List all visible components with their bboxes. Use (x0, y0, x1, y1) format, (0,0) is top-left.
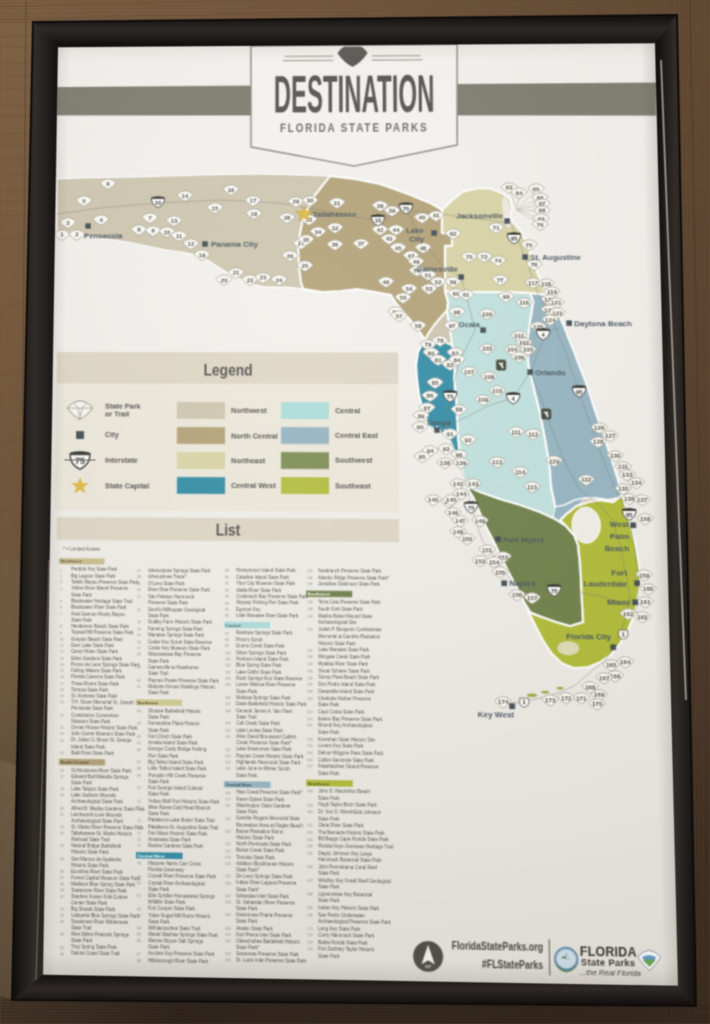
svg-text:28: 28 (60, 787, 64, 791)
svg-text:81: 81 (137, 894, 141, 899)
svg-text:126: 126 (225, 881, 231, 886)
svg-text:Letchworth-Love Mounds: Letchworth-Love Mounds (71, 812, 122, 818)
svg-text:139: 139 (307, 607, 313, 611)
svg-text:Naples: Naples (509, 579, 536, 589)
svg-text:26: 26 (60, 768, 64, 772)
svg-text:77: 77 (137, 844, 141, 848)
svg-text:38: 38 (60, 882, 64, 886)
svg-text:North Central: North Central (60, 759, 88, 765)
svg-text:165: 165 (307, 851, 313, 856)
svg-text:Gamble Rogers Memorial State: Gamble Rogers Memorial State (236, 816, 301, 822)
svg-text:86: 86 (137, 939, 141, 944)
svg-text:State Park: State Park (236, 919, 258, 925)
svg-text:Dagny Johnson Key Largo: Dagny Johnson Key Largo (318, 850, 373, 856)
svg-text:1: 1 (621, 632, 625, 639)
svg-text:65: 65 (137, 741, 141, 745)
svg-text:DEP: DEP (425, 965, 432, 970)
svg-text:114: 114 (225, 760, 231, 764)
svg-text:Amelia Island State Park: Amelia Island State Park (148, 740, 198, 746)
svg-text:State Trail: State Trail (236, 714, 256, 720)
svg-text:156: 156 (512, 593, 523, 600)
svg-text:State Park: State Park (318, 771, 340, 777)
svg-text:109: 109 (225, 722, 231, 726)
svg-text:116: 116 (225, 791, 231, 795)
svg-text:Devil’s Millhopper Geological: Devil’s Millhopper Geological (148, 607, 205, 613)
svg-text:45: 45 (395, 246, 403, 252)
svg-text:Madira Bickel Mound State: Madira Bickel Mound State (318, 613, 373, 619)
svg-text:State Park: State Park (148, 714, 170, 720)
svg-text:State Park: State Park (148, 658, 170, 664)
svg-text:State Trail: State Trail (71, 925, 92, 931)
svg-text:Palatka-to-St. Augustine State: Palatka-to-St. Augustine State Trail (148, 824, 218, 830)
svg-text:Avalon State Park: Avalon State Park (236, 925, 274, 931)
svg-text:59: 59 (137, 666, 141, 670)
svg-text:Little Talbot Island State Par: Little Talbot Island State Park (148, 766, 207, 772)
svg-text:151: 151 (482, 548, 493, 554)
svg-text:Lake Griffin State Park: Lake Griffin State Park (236, 669, 282, 675)
svg-text:99: 99 (225, 644, 229, 648)
svg-text:List: List (216, 522, 241, 541)
svg-text:30: 30 (60, 806, 64, 810)
svg-text:Mound Key Archaeological: Mound Key Archaeological (318, 723, 372, 729)
svg-text:Gainesville-to-Hawthorne: Gainesville-to-Hawthorne (148, 664, 199, 670)
svg-text:153: 153 (307, 737, 313, 741)
svg-text:Memorial at Gamble Plantation: Memorial at Gamble Plantation (318, 634, 381, 640)
svg-text:102: 102 (225, 664, 231, 668)
svg-text:124: 124 (545, 318, 556, 324)
svg-text:27: 27 (60, 775, 64, 779)
svg-text:143: 143 (468, 482, 479, 488)
svg-text:Fort: Fort (611, 568, 628, 578)
svg-text:Highlands Hammock State Park: Highlands Hammock State Park (236, 759, 301, 765)
svg-text:10: 10 (164, 230, 171, 236)
svg-text:39: 39 (60, 888, 64, 892)
svg-text:9: 9 (60, 631, 62, 635)
svg-text:Historic State Park: Historic State Park (236, 835, 275, 841)
svg-text:128: 128 (593, 440, 604, 446)
svg-text:Southeast: Southeast (335, 483, 371, 491)
svg-text:Pier State Park: Pier State Park (148, 753, 179, 759)
svg-text:42: 42 (60, 914, 64, 919)
svg-text:Cockroach Bay Preserve State P: Cockroach Bay Preserve State Park (236, 594, 309, 600)
svg-text:State Park: State Park (318, 898, 340, 904)
svg-text:97: 97 (225, 631, 229, 635)
svg-text:13: 13 (171, 219, 179, 225)
svg-text:Dr. Julian G. Bruce St. George: Dr. Julian G. Bruce St. George (71, 737, 132, 743)
svg-text:134: 134 (631, 481, 642, 487)
svg-text:Jonathan Dickinson State Park: Jonathan Dickinson State Park (318, 581, 381, 587)
svg-text:T.H. Stone Memorial St. Joseph: T.H. Stone Memorial St. Joseph (71, 700, 135, 706)
svg-text:Stephen Foster Folk Culture: Stephen Foster Folk Culture (71, 894, 129, 900)
svg-text:71: 71 (493, 226, 501, 232)
svg-text:143: 143 (307, 655, 313, 659)
svg-text:Northeast: Northeast (231, 458, 266, 466)
svg-text:Big Shoals State Park: Big Shoals State Park (71, 906, 116, 912)
svg-text:20: 20 (60, 701, 64, 705)
svg-text:Haw Creek Preserve State Park*: Haw Creek Preserve State Park* (236, 790, 303, 796)
svg-text:Ochlockonee River State Park: Ochlockonee River State Park (71, 767, 132, 773)
svg-text:State Park: State Park (105, 403, 141, 410)
svg-text:172: 172 (307, 933, 313, 938)
svg-text:Florida Keys Overseas Heritage: Florida Keys Overseas Heritage Trail (318, 843, 393, 850)
svg-text:FLORIDA STATE PARKS: FLORIDA STATE PARKS (280, 122, 429, 136)
svg-text:Daytona Beach: Daytona Beach (574, 319, 632, 328)
svg-text:Blackwater Heritage State Trai: Blackwater Heritage State Trail (71, 598, 132, 604)
svg-text:100: 100 (225, 651, 231, 655)
svg-text:Hugh Taylor Birch State Park: Hugh Taylor Birch State Park (318, 802, 378, 808)
svg-text:171: 171 (307, 927, 313, 932)
svg-text:126: 126 (594, 426, 605, 432)
svg-text:State Park: State Park (148, 944, 170, 950)
svg-text:135: 135 (618, 487, 629, 493)
svg-text:163: 163 (637, 615, 649, 622)
svg-text:53: 53 (426, 287, 434, 293)
svg-text:Ellie Schiller Homosassa Sprin: Ellie Schiller Homosassa Springs (148, 893, 215, 900)
svg-text:Caladesi Island State Park: Caladesi Island State Park (236, 574, 290, 580)
svg-text:Falling Waters State Park: Falling Waters State Park (71, 668, 123, 674)
svg-text:151: 151 (307, 717, 313, 721)
svg-text:18: 18 (60, 688, 64, 692)
svg-text:Anastasia State Park: Anastasia State Park (148, 837, 191, 843)
svg-text:107: 107 (225, 702, 231, 706)
svg-text:Ravine Gardens State Park: Ravine Gardens State Park (148, 843, 204, 849)
svg-text:134: 134 (225, 958, 231, 963)
svg-text:154: 154 (307, 744, 313, 748)
svg-text:80: 80 (137, 881, 141, 885)
svg-text:44: 44 (393, 228, 401, 234)
svg-text:103: 103 (225, 670, 231, 674)
svg-text:Yellow River Marsh Preserve: Yellow River Marsh Preserve (71, 586, 129, 592)
svg-text:152: 152 (475, 559, 486, 566)
svg-text:Stump Pass Beach State Park: Stump Pass Beach State Park (318, 675, 380, 681)
svg-text:162: 162 (307, 831, 313, 836)
svg-text:170: 170 (307, 913, 313, 918)
svg-text:113: 113 (225, 754, 231, 758)
svg-text:State Parks: State Parks (581, 957, 636, 969)
svg-text:St. Lucie Inlet Preserve State: St. Lucie Inlet Preserve State Park (236, 957, 307, 964)
svg-text:Museum State Park: Museum State Park (71, 718, 111, 724)
svg-text:Don Pedro Island State Park: Don Pedro Island State Park (318, 682, 376, 688)
svg-text:91: 91 (447, 432, 455, 438)
svg-text:State Park: State Park (148, 727, 170, 733)
svg-text:State Park: State Park (148, 919, 170, 925)
svg-text:44: 44 (60, 933, 64, 938)
svg-text:Lignumvitae Key Botanical: Lignumvitae Key Botanical (318, 891, 372, 897)
svg-text:148: 148 (307, 689, 313, 693)
svg-text:46: 46 (60, 952, 64, 957)
svg-text:171: 171 (576, 696, 588, 703)
svg-text:133: 133 (622, 473, 633, 479)
svg-text:Interstate: Interstate (105, 457, 138, 464)
svg-text:Big Lagoon State Park: Big Lagoon State Park (71, 573, 116, 579)
svg-text:101: 101 (225, 657, 231, 661)
svg-text:78: 78 (437, 339, 445, 345)
svg-text:Three Rivers State Park: Three Rivers State Park (71, 681, 120, 687)
svg-text:90: 90 (417, 425, 424, 431)
svg-text:103: 103 (482, 347, 493, 353)
svg-text:Panama City: Panama City (211, 240, 259, 249)
svg-text:16: 16 (228, 188, 236, 194)
svg-text:Waccasassa Bay Preserve: Waccasassa Bay Preserve (148, 652, 202, 658)
svg-text:Key West: Key West (478, 709, 515, 719)
svg-text:Atlantic Ridge Preserve State: Atlantic Ridge Preserve State Park* (318, 575, 390, 581)
svg-text:22: 22 (247, 278, 255, 284)
svg-text:John Gorrie Museum State Park: John Gorrie Museum State Park (71, 731, 136, 737)
svg-text:City: City (409, 235, 425, 244)
svg-text:Tomoka State Park: Tomoka State Park (236, 854, 276, 860)
svg-text:173: 173 (307, 940, 313, 945)
svg-text:74: 74 (495, 259, 503, 265)
svg-text:164: 164 (307, 844, 313, 849)
svg-text:152: 152 (307, 724, 313, 728)
svg-text:157: 157 (307, 765, 313, 769)
svg-text:58: 58 (137, 653, 141, 657)
svg-text:42: 42 (377, 228, 385, 234)
svg-text:...the Real Florida: ...the Real Florida (579, 969, 641, 978)
svg-text:Dr. Von D. Mizell-Eula Johnson: Dr. Von D. Mizell-Eula Johnson (318, 809, 382, 815)
svg-text:Creek Preserve State Park*: Creek Preserve State Park* (236, 740, 292, 746)
svg-text:North Peninsula State Park: North Peninsula State Park (236, 841, 292, 847)
svg-text:Northwest: Northwest (60, 559, 82, 564)
svg-text:169: 169 (307, 906, 313, 911)
svg-text:83: 83 (137, 913, 141, 918)
svg-text:Island State Park: Island State Park (71, 744, 106, 750)
svg-text:110: 110 (492, 389, 502, 395)
svg-text:174: 174 (498, 700, 509, 707)
svg-text:Gainesville: Gainesville (416, 265, 458, 274)
svg-text:124: 124 (225, 862, 231, 867)
svg-text:Archaeological State Park: Archaeological State Park (71, 799, 124, 805)
svg-text:Yellow Bluff Fort Historic Sta: Yellow Bluff Fort Historic State Park (148, 798, 220, 804)
svg-text:111: 111 (225, 735, 230, 739)
svg-text:12: 12 (188, 242, 196, 248)
svg-text:13: 13 (60, 656, 64, 660)
svg-text:72: 72 (481, 255, 489, 261)
svg-text:141: 141 (307, 628, 313, 632)
svg-text:29: 29 (60, 794, 64, 798)
svg-text:8: 8 (60, 625, 62, 629)
svg-text:Bald Point State Park: Bald Point State Park (71, 750, 115, 756)
svg-text:160: 160 (307, 810, 313, 814)
svg-text:FloridaStateParks.org: FloridaStateParks.org (452, 940, 544, 954)
svg-text:Lower Wekiva River Preserve: Lower Wekiva River Preserve (236, 682, 296, 688)
svg-text:144: 144 (307, 662, 313, 666)
svg-text:167: 167 (307, 879, 313, 884)
svg-text:* = Limited Access: * = Limited Access (63, 547, 100, 553)
svg-text:57: 57 (396, 314, 403, 320)
svg-text:40: 40 (60, 895, 64, 899)
svg-text:Eden Gardens State Park: Eden Gardens State Park (71, 655, 123, 661)
svg-text:145: 145 (446, 498, 457, 504)
svg-text:162: 162 (623, 612, 635, 619)
svg-text:Fort Clinch State Park: Fort Clinch State Park (148, 734, 193, 740)
svg-text:132: 132 (225, 939, 231, 944)
svg-text:108: 108 (484, 375, 495, 381)
svg-text:11: 11 (176, 234, 183, 240)
svg-text:Torreya State Park: Torreya State Park (71, 687, 109, 693)
svg-text:43: 43 (386, 237, 394, 243)
svg-text:1: 1 (522, 700, 526, 707)
svg-text:Legend: Legend (204, 362, 253, 380)
svg-text:Dade Battlefield Historic Stat: Dade Battlefield Historic State Park (236, 701, 308, 707)
svg-text:25: 25 (302, 264, 310, 270)
svg-text:61: 61 (137, 685, 141, 689)
svg-text:127: 127 (605, 434, 616, 440)
svg-text:Fort Cooper State Park: Fort Cooper State Park (148, 906, 196, 912)
svg-text:General James A. Van Fleet: General James A. Van Fleet (236, 708, 293, 714)
svg-text:131: 131 (225, 933, 231, 938)
svg-text:96: 96 (225, 614, 229, 618)
svg-text:or Trail: or Trail (105, 411, 129, 418)
svg-text:Nature Coast State Trail: Nature Coast State Trail (71, 951, 120, 957)
svg-text:95: 95 (576, 389, 583, 395)
svg-text:State Park: State Park (236, 906, 258, 912)
svg-text:17: 17 (60, 682, 64, 686)
svg-text:84: 84 (137, 926, 141, 931)
svg-text:89: 89 (225, 569, 229, 573)
svg-text:State Park: State Park (318, 729, 340, 735)
svg-text:18: 18 (251, 212, 259, 218)
svg-text:Central: Central (335, 408, 360, 415)
svg-text:21: 21 (233, 271, 241, 277)
svg-text:140: 140 (428, 498, 438, 504)
svg-text:Historic State Park: Historic State Park (71, 862, 110, 868)
svg-text:Tampa: Tampa (426, 418, 452, 428)
svg-text:125: 125 (225, 875, 231, 880)
svg-text:45: 45 (60, 945, 64, 950)
svg-text:76: 76 (137, 838, 141, 842)
svg-text:3: 3 (60, 580, 62, 584)
svg-text:Colt Creek State Park: Colt Creek State Park (236, 721, 281, 727)
svg-text:John D. MacArthur Beach: John D. MacArthur Beach (318, 788, 371, 794)
svg-text:136: 136 (624, 497, 635, 503)
svg-text:Bulow Creek State Park: Bulow Creek State Park (236, 848, 285, 854)
svg-text:Fort Pierce Inlet State Park: Fort Pierce Inlet State Park (236, 932, 292, 939)
svg-text:West: West (610, 520, 630, 530)
svg-text:Palm: Palm (610, 532, 630, 542)
svg-text:34: 34 (315, 230, 323, 236)
svg-text:St. Andrews State Park: St. Andrews State Park (71, 693, 118, 699)
svg-text:7: 7 (148, 216, 151, 222)
svg-text:State Park: State Park (236, 772, 258, 778)
svg-text:Blackwater River State Park: Blackwater River State Park (71, 605, 127, 611)
svg-text:105: 105 (225, 683, 231, 687)
svg-text:172: 172 (561, 696, 573, 703)
svg-text:52: 52 (137, 608, 141, 612)
svg-text:Bahia Honda State Park: Bahia Honda State Park (318, 939, 368, 945)
svg-text:167: 167 (599, 676, 610, 683)
svg-text:41: 41 (60, 907, 64, 912)
svg-text:78: 78 (137, 862, 141, 866)
svg-text:Natural Bridge Battlefield: Natural Bridge Battlefield (71, 843, 122, 849)
svg-text:57: 57 (137, 646, 141, 650)
svg-text:Edward Ball Wakulla Springs: Edward Ball Wakulla Springs (71, 774, 129, 780)
svg-text:114: 114 (515, 470, 526, 476)
svg-text:34: 34 (60, 844, 64, 848)
svg-text:108: 108 (225, 709, 231, 713)
svg-text:State Park: State Park (318, 702, 340, 708)
svg-text:5: 5 (60, 599, 62, 603)
svg-text:89: 89 (418, 414, 426, 420)
svg-text:Fort Zachary Taylor Historic: Fort Zachary Taylor Historic (318, 946, 374, 953)
svg-text:Tallahassee: Tallahassee (313, 210, 357, 219)
svg-text:147: 147 (455, 519, 465, 525)
svg-text:51: 51 (137, 595, 141, 599)
svg-text:10: 10 (375, 218, 382, 224)
svg-text:37: 37 (60, 876, 64, 880)
svg-text:17: 17 (250, 199, 257, 205)
svg-text:Central: Central (226, 622, 241, 627)
svg-text:Delnor-Wiggins Pass State Park: Delnor-Wiggins Pass State Park (318, 750, 384, 756)
svg-text:61: 61 (463, 293, 471, 299)
svg-text:97: 97 (449, 324, 456, 330)
svg-text:48: 48 (420, 246, 428, 252)
svg-text:Seabranch Preserve State Park: Seabranch Preserve State Park (318, 568, 382, 574)
svg-text:George Crady Bridge Fishing: George Crady Bridge Fishing (148, 746, 207, 752)
svg-text:14: 14 (182, 194, 190, 200)
svg-text:140: 140 (307, 614, 313, 618)
svg-text:San Felasco Hammock: San Felasco Hammock (148, 594, 195, 600)
svg-text:75: 75 (526, 243, 534, 249)
svg-text:Hontoon Island State Park: Hontoon Island State Park (236, 656, 290, 662)
svg-text:75: 75 (75, 455, 85, 466)
svg-text:Silver Springs State Park: Silver Springs State Park (236, 650, 287, 656)
svg-text:Cayo Costa State Park: Cayo Costa State Park (318, 709, 365, 715)
svg-text:Little Manatee River State Par: Little Manatee River State Park (236, 613, 299, 619)
svg-text:135: 135 (307, 569, 313, 573)
svg-text:149: 149 (307, 696, 313, 700)
svg-text:19: 19 (199, 253, 207, 259)
svg-text:20: 20 (221, 278, 228, 284)
svg-text:155: 155 (307, 751, 313, 755)
svg-text:Crystal River Archaeological: Crystal River Archaeological (148, 880, 205, 886)
svg-text:Marjorie Kinnan Rawlings Histo: Marjorie Kinnan Rawlings Historic (148, 684, 215, 690)
svg-text:46: 46 (383, 280, 391, 286)
svg-text:Lake: Lake (406, 226, 424, 235)
svg-text:130: 130 (225, 926, 231, 931)
svg-text:32: 32 (60, 825, 64, 829)
svg-text:23: 23 (60, 732, 64, 736)
svg-text:85: 85 (432, 381, 440, 387)
svg-text:Paynes Creek Historic State Pa: Paynes Creek Historic State Park (236, 753, 304, 759)
svg-text:120: 120 (225, 830, 231, 834)
svg-text:State Park: State Park (148, 690, 170, 696)
svg-text:Cedar Key Scrub State Reserve: Cedar Key Scrub State Reserve (148, 639, 213, 645)
svg-text:Peninsula State Park: Peninsula State Park (71, 706, 114, 712)
svg-text:DESTINATION: DESTINATION (274, 63, 435, 124)
svg-text:O’Leno State Park: O’Leno State Park (148, 581, 185, 587)
svg-text:Oscar Scherer State Park: Oscar Scherer State Park (318, 668, 371, 674)
svg-text:Fred Gannon Rocky Bayou: Fred Gannon Rocky Bayou (71, 611, 126, 617)
svg-text:138: 138 (307, 600, 313, 604)
svg-text:84: 84 (454, 358, 462, 364)
svg-text:Lake Manatee State Park: Lake Manatee State Park (318, 647, 370, 653)
svg-text:40: 40 (419, 216, 426, 222)
svg-text:72: 72 (137, 806, 141, 810)
svg-text:65: 65 (533, 187, 541, 193)
svg-text:Myakka River State Park: Myakka River State Park (318, 661, 369, 667)
svg-text:31: 31 (334, 201, 342, 207)
svg-text:Marjorie Harris Carr Cross: Marjorie Harris Carr Cross (148, 861, 201, 867)
svg-text:#FLStateParks: #FLStateParks (482, 959, 544, 972)
svg-text:State Park: State Park (148, 792, 170, 798)
svg-text:12: 12 (60, 650, 64, 654)
svg-text:87: 87 (137, 952, 141, 957)
svg-text:Tarkiln Bayou Preserve State P: Tarkiln Bayou Preserve State Park (71, 579, 140, 585)
svg-text:The Barnacle Historic State Pa: The Barnacle Historic State Park (318, 830, 385, 836)
svg-text:53: 53 (137, 621, 141, 625)
svg-text:73: 73 (466, 255, 474, 261)
